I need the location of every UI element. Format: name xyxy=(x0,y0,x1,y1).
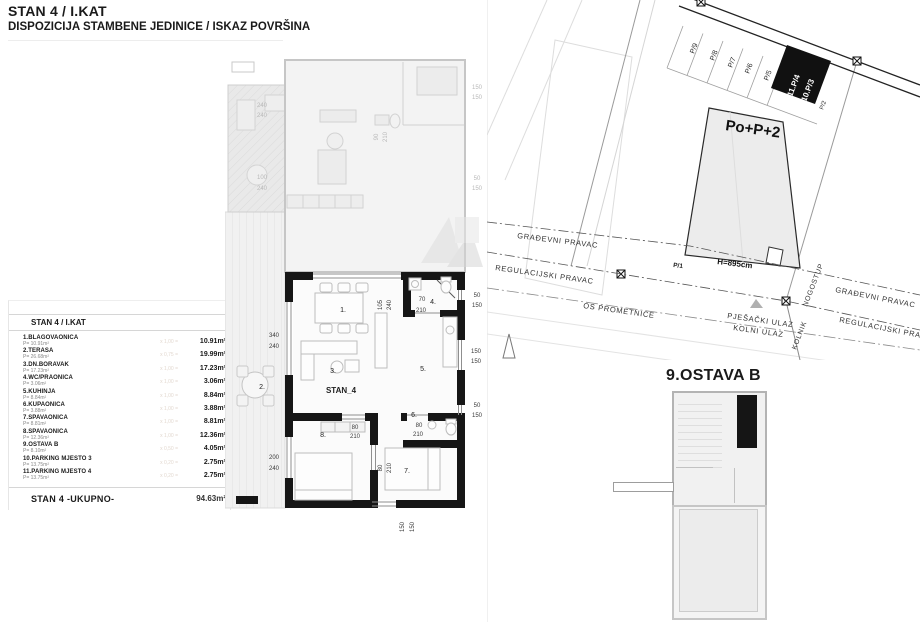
header-divider xyxy=(8,40,283,41)
terrace-area xyxy=(225,212,285,508)
svg-text:240: 240 xyxy=(269,466,280,472)
svg-text:240: 240 xyxy=(257,103,268,109)
svg-text:150: 150 xyxy=(410,521,416,532)
table-row: 5.KUHINJAP= 8.84m²x 1,00 =8.84m² xyxy=(9,389,230,402)
svg-text:80: 80 xyxy=(416,423,423,429)
storage-wall-line xyxy=(676,467,713,468)
svg-text:P/2: P/2 xyxy=(819,100,828,111)
svg-text:80: 80 xyxy=(352,425,359,431)
area-table-header: STAN 4 / I.KAT xyxy=(9,314,230,331)
table-row: 6.KUPAONICAP= 3.88m²x 1,00 =3.88m² xyxy=(9,402,230,415)
storage-stairs xyxy=(678,398,722,468)
storage-ramp xyxy=(613,482,674,492)
table-row: 11.PARKING MJESTO 4P= 13.75m²x 0,20 =2.7… xyxy=(9,469,230,482)
regulacijski-pravac-right: REGULACIJSKI PRAVAC xyxy=(839,315,920,343)
total-label: STAN 4 -UKUPNO- xyxy=(31,494,114,504)
svg-text:150: 150 xyxy=(472,303,483,309)
building: Po+P+2 H=895cm P/1 xyxy=(673,108,800,270)
storage-wall-line xyxy=(734,468,735,503)
room-7-label: 7. xyxy=(404,468,410,475)
svg-text:240: 240 xyxy=(257,186,268,192)
table-row: 7.SPAVAONICAP= 8.81m²x 1,00 =8.81m² xyxy=(9,415,230,428)
room-6-label: 6. xyxy=(411,412,417,419)
room-3-label: 3. xyxy=(330,368,336,375)
room-5-label: 5. xyxy=(420,366,426,373)
table-row: 4.WC/PRAONICAP= 3.06m²x 1,00 =3.06m² xyxy=(9,375,230,388)
page-title: STAN 4 / I.KAT xyxy=(8,3,107,19)
room-4-label: 4. xyxy=(430,299,436,306)
site-plan: P/9 P/8 P/7 P/6 P/5 11.P/4 10.P/3 P/2 Po… xyxy=(487,0,920,360)
total-value: 94.63m² xyxy=(196,494,226,503)
table-row: 8.SPAVAONICAP= 12.36m²x 1,00 =12.36m² xyxy=(9,429,230,442)
gradevni-pravac-right: GRAĐEVNI PRAVAC xyxy=(835,285,917,309)
table-total-row: STAN 4 -UKUPNO- 94.63m² xyxy=(9,487,230,510)
svg-text:210: 210 xyxy=(350,434,361,440)
room-8-label: 8. xyxy=(320,432,326,439)
svg-text:80: 80 xyxy=(378,464,384,471)
svg-text:50: 50 xyxy=(474,176,481,182)
table-row: 1.BLAGOVAONICAP= 10.91m²x 1,00 =10.91m² xyxy=(9,335,230,348)
table-row: 10.PARKING MJESTO 3P= 13.75m²x 0,20 =2.7… xyxy=(9,456,230,469)
svg-text:100: 100 xyxy=(257,175,268,181)
svg-text:210: 210 xyxy=(416,308,427,314)
area-table-rows: 1.BLAGOVAONICAP= 10.91m²x 1,00 =10.91m² … xyxy=(9,331,230,482)
svg-text:50: 50 xyxy=(474,293,481,299)
svg-text:P/5: P/5 xyxy=(763,69,773,81)
storage-title: 9.OSTAVA B xyxy=(666,367,761,385)
room-1-label: 1. xyxy=(340,307,346,314)
architectural-sheet: { "header": { "title": "STAN 4 / I.KAT",… xyxy=(0,0,920,622)
svg-text:150: 150 xyxy=(472,95,483,101)
svg-text:240: 240 xyxy=(269,344,280,350)
svg-text:150: 150 xyxy=(472,186,483,192)
storage-lower-inner xyxy=(679,509,758,612)
svg-text:210: 210 xyxy=(413,432,424,438)
svg-text:70: 70 xyxy=(419,297,426,303)
svg-text:150: 150 xyxy=(471,359,482,365)
floor-plan: 1. 2. 3. 4. 5. 6. 7. 8. STAN_4 240 240 1… xyxy=(225,55,490,535)
area-table: STAN 4 / I.KAT 1.BLAGOVAONICAP= 10.91m²x… xyxy=(8,300,231,510)
svg-text:210: 210 xyxy=(387,462,393,473)
parcel-number: P/1 xyxy=(673,262,684,270)
room-2-label: 2. xyxy=(259,384,265,391)
svg-text:50: 50 xyxy=(474,403,481,409)
svg-text:150: 150 xyxy=(472,413,483,419)
unit-label: STAN_4 xyxy=(326,386,357,395)
svg-text:105: 105 xyxy=(378,299,384,310)
svg-text:P/9: P/9 xyxy=(689,42,699,54)
nogostup-label: NOGOSTUP xyxy=(802,263,825,308)
svg-text:240: 240 xyxy=(257,113,268,119)
os-prometnice-label: OS PROMETNICE xyxy=(583,301,656,320)
svg-text:240: 240 xyxy=(387,299,393,310)
svg-text:150: 150 xyxy=(400,521,406,532)
svg-text:340: 340 xyxy=(269,333,280,339)
page-subtitle: DISPOZICIJA STAMBENE JEDINICE / ISKAZ PO… xyxy=(8,21,310,33)
svg-text:P/8: P/8 xyxy=(709,49,719,61)
table-row: 9.OSTAVA BP= 8.10m²x 0,50 =4.05m² xyxy=(9,442,230,455)
svg-text:90: 90 xyxy=(374,133,380,140)
svg-text:150: 150 xyxy=(471,349,482,355)
svg-text:200: 200 xyxy=(269,455,280,461)
svg-text:P/6: P/6 xyxy=(744,62,754,74)
entrance-arrow xyxy=(750,299,763,308)
svg-text:210: 210 xyxy=(383,131,389,142)
table-row: 3.DN.BORAVAKP= 17.23m²x 1,00 =17.23m² xyxy=(9,362,230,375)
storage-room-highlight xyxy=(737,395,757,448)
table-row: 2.TERASAP= 26.68m²x 0,75 =19.99m² xyxy=(9,348,230,361)
svg-text:150: 150 xyxy=(472,85,483,91)
